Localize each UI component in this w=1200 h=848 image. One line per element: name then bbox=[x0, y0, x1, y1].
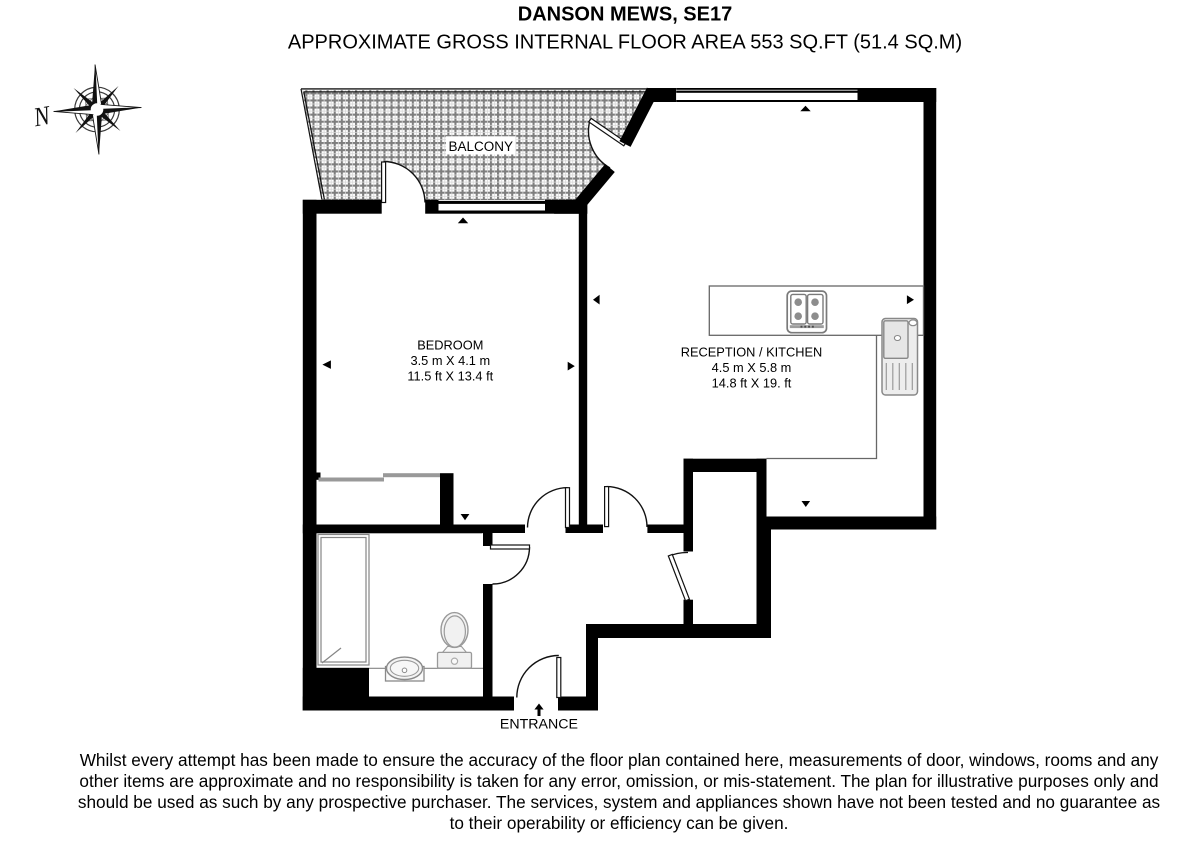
svg-text:3.5 m X 4.1 m: 3.5 m X 4.1 m bbox=[410, 353, 490, 368]
svg-text:Whilst every attempt has been: Whilst every attempt has been made to en… bbox=[80, 750, 1159, 770]
svg-text:11.5 ft X 13.4 ft: 11.5 ft X 13.4 ft bbox=[407, 368, 493, 383]
svg-text:other items are approximate an: other items are approximate and no respo… bbox=[79, 771, 1158, 791]
svg-text:to their operability or effici: to their operability or efficiency can b… bbox=[450, 813, 789, 833]
svg-text:BALCONY: BALCONY bbox=[449, 139, 514, 154]
svg-text:14.8 ft X 19. ft: 14.8 ft X 19. ft bbox=[712, 375, 792, 390]
svg-text:should be used as such by any: should be used as such by any prospectiv… bbox=[78, 792, 1160, 812]
svg-text:APPROXIMATE GROSS INTERNAL FLO: APPROXIMATE GROSS INTERNAL FLOOR AREA 55… bbox=[288, 32, 962, 54]
svg-text:BEDROOM: BEDROOM bbox=[417, 338, 483, 353]
svg-text:RECEPTION / KITCHEN: RECEPTION / KITCHEN bbox=[681, 345, 823, 360]
svg-text:ENTRANCE: ENTRANCE bbox=[500, 716, 578, 732]
svg-text:DANSON MEWS, SE17: DANSON MEWS, SE17 bbox=[518, 4, 732, 26]
svg-text:4.5 m X 5.8 m: 4.5 m X 5.8 m bbox=[712, 360, 792, 375]
